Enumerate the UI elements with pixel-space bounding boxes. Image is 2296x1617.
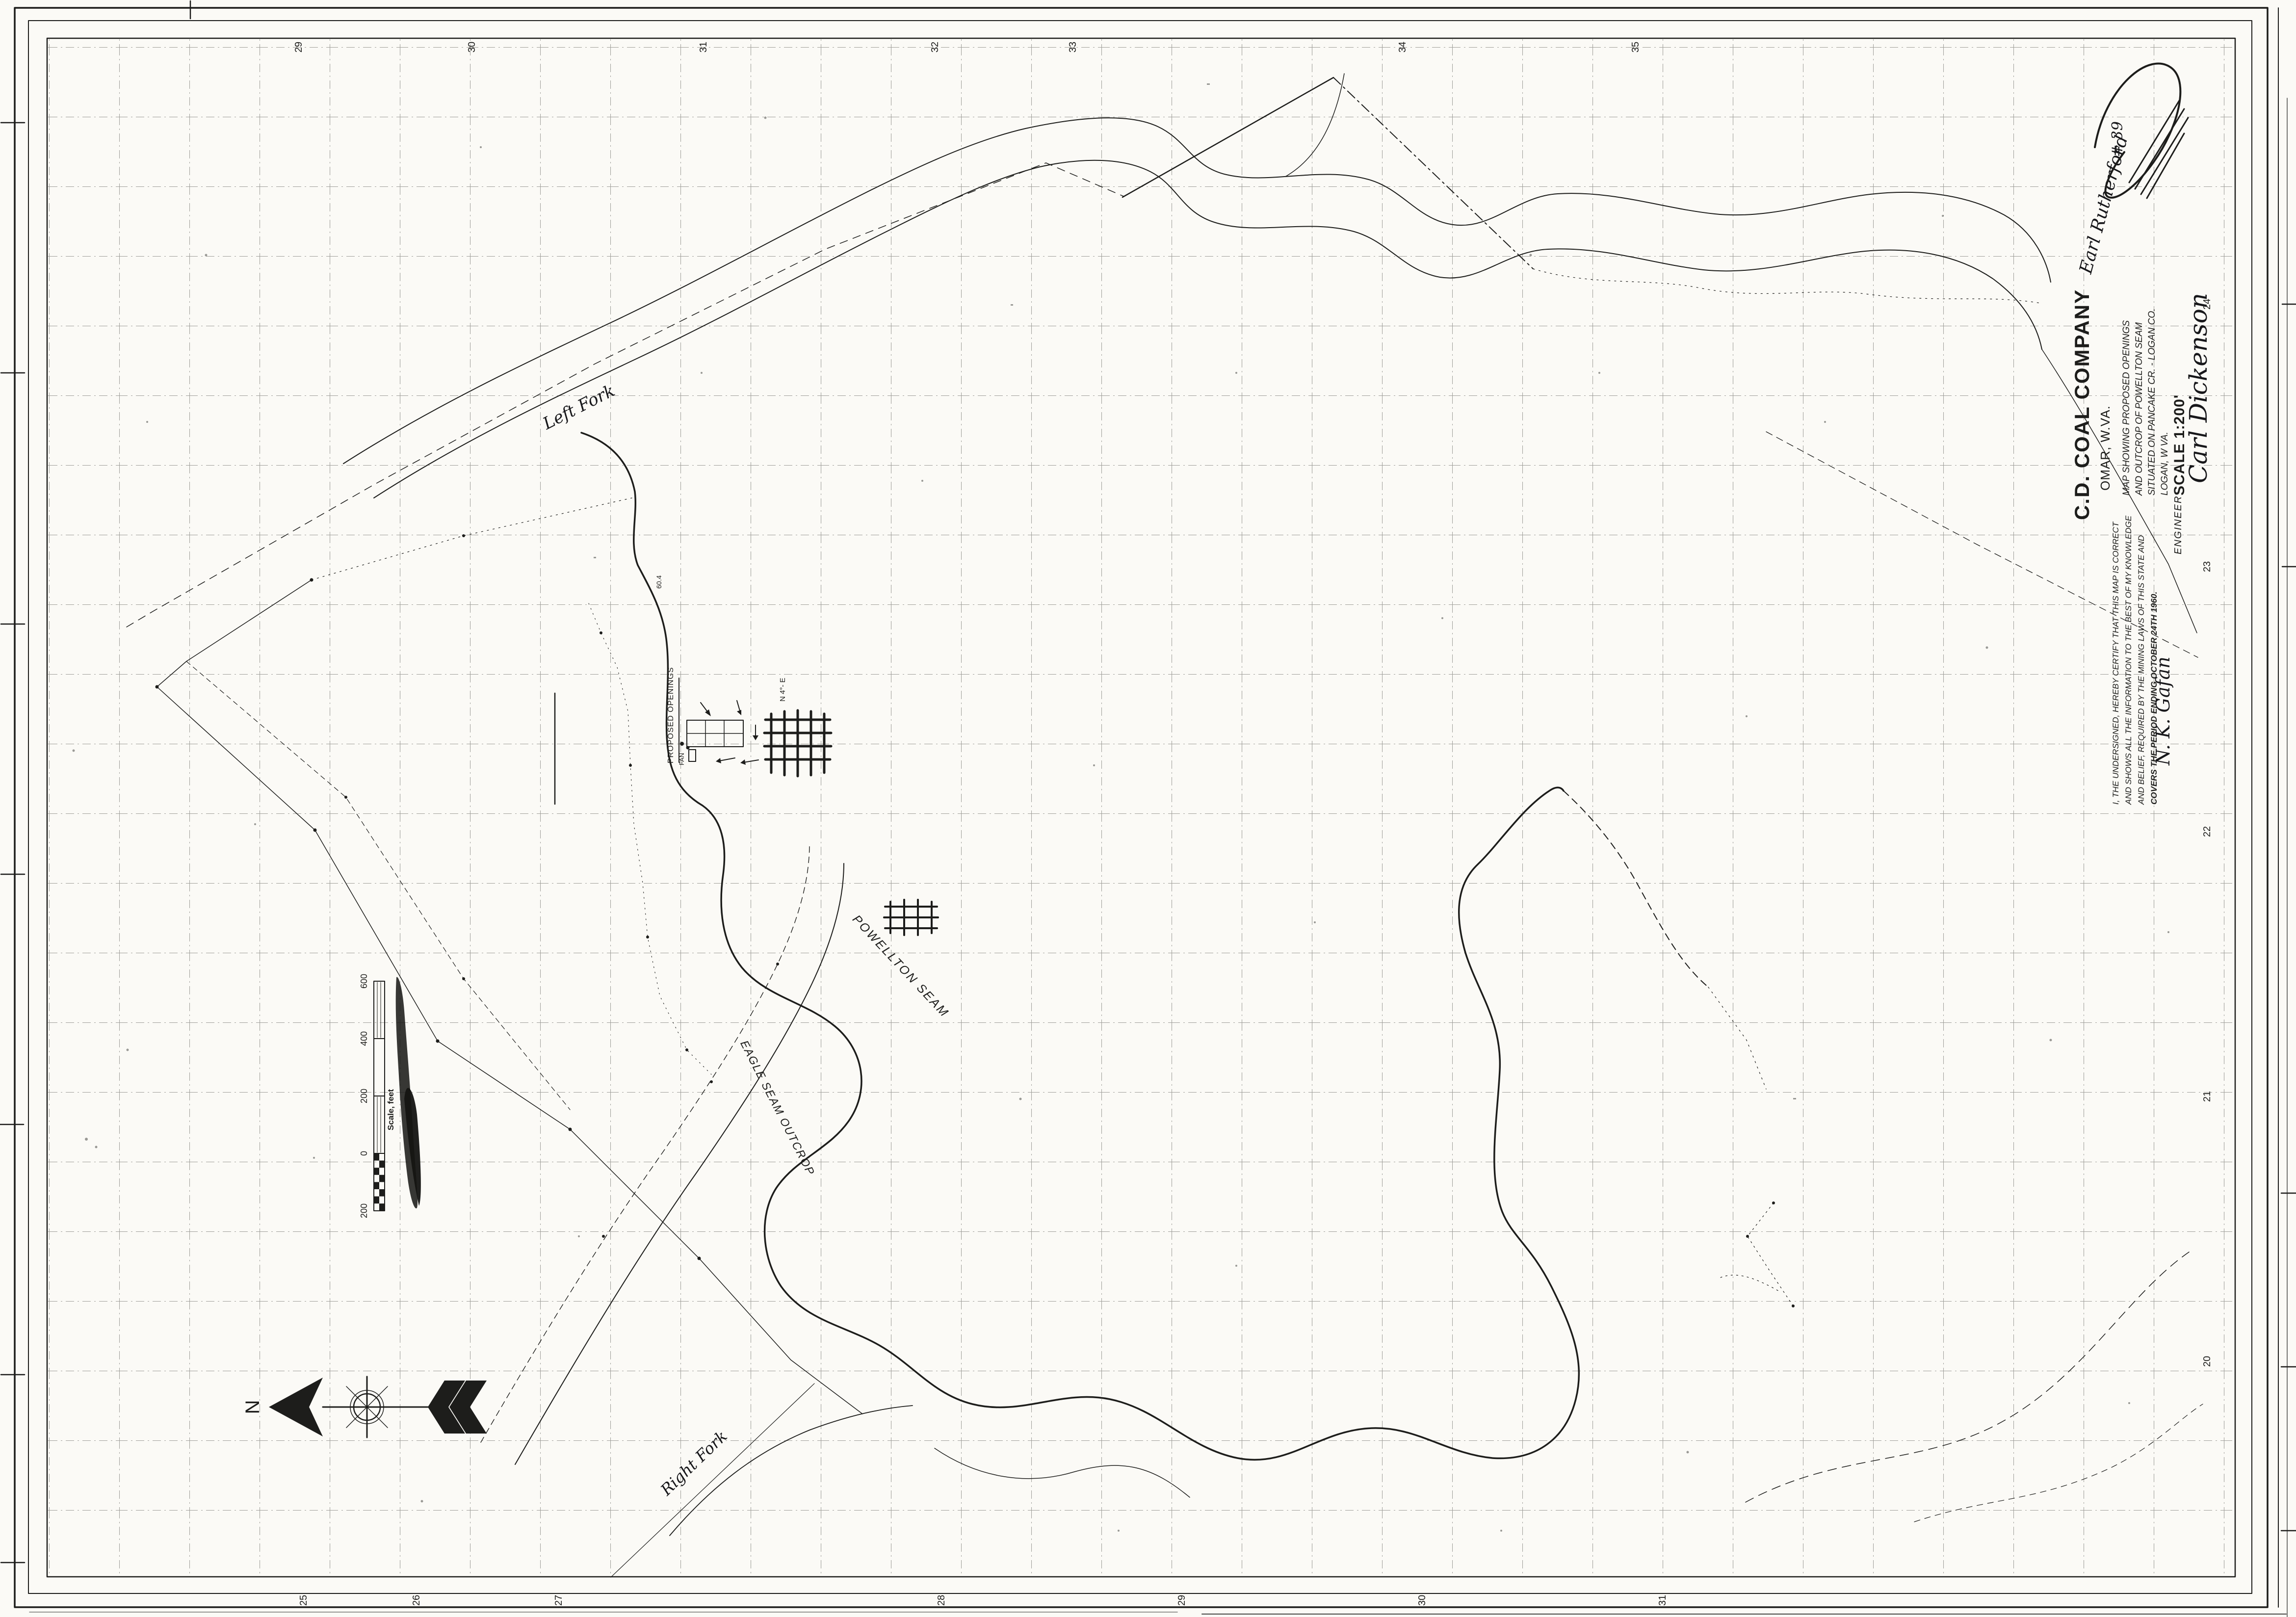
map-desc-line2: AND OUTCROP OF POWELLTON SEAM [2134,322,2144,496]
cert-line3: AND BELIEF, REQUIRED BY THE MINING LAWS … [2137,535,2146,805]
grid-num-bottom-3: 28 [936,1595,947,1606]
grid-num-top-2: 31 [698,42,709,52]
grid-num-top-4: 33 [1068,42,1078,52]
grid-num-bottom-2: 27 [553,1595,564,1606]
grid-num-right-4: 20 [2202,1356,2213,1367]
map-desc-line3: SITUATED ON PANCAKE CR. - LOGAN CO. [2147,309,2157,496]
cert-line2: AND SHOWS ALL THE INFORMATION TO THE BES… [2124,515,2133,805]
grid-num-bottom-4: 29 [1176,1595,1187,1606]
grid-num-right-3: 21 [2202,1091,2213,1102]
grid-num-top-5: 34 [1397,42,1408,52]
map-sheet: 600 400 200 0 200 Scale, feet N Left [0,0,2296,1617]
scale-tick-400: 400 [359,1031,369,1046]
scale-tick-200: 200 [359,1089,369,1103]
spot-elevation-label: 60.4 [655,575,663,589]
bearing-label: N 4°- E [779,678,787,702]
cert-title: ENGINEER [2173,496,2184,554]
scale-tick-200b: 200 [359,1203,369,1218]
scale-signature: Carl Dickenson [2184,293,2213,483]
grid-num-bottom-1: 26 [411,1595,422,1606]
fan-label: FAN [678,753,685,765]
grid-num-top-6: 35 [1630,42,1641,52]
grid-num-top-1: 30 [467,42,477,52]
grid-num-bottom-5: 30 [1417,1595,1428,1606]
company-town: OMAR, W.VA. [2098,405,2113,491]
map-desc-line4: LOGAN, W VA. [2160,432,2170,496]
map-desc-line1: MAP SHOWING PROPOSED OPENINGS [2121,320,2132,496]
scale-tick-600: 600 [359,974,369,989]
proposed-openings-label: PROPOSED OPENINGS [667,667,675,763]
grid-num-right-0: 24 [2202,299,2213,310]
grid-num-right-1: 23 [2202,561,2213,572]
grid-num-top-3: 32 [930,42,940,52]
scale-caption: Scale, feet [386,1089,395,1130]
north-label: N [242,1400,263,1414]
grid-num-bottom-6: 31 [1657,1595,1668,1606]
grid-num-top-0: 29 [293,42,304,52]
grid-num-bottom-0: 25 [298,1595,309,1606]
coordinate-grid [47,38,2235,1577]
grid-num-right-2: 22 [2202,826,2213,837]
cert-signature: N. K. Gafan [2152,656,2174,766]
cert-line1: I, THE UNDERSIGNED, HEREBY CERTIFY THAT … [2111,521,2120,805]
scale-tick-0: 0 [359,1151,369,1156]
company-name: C.D. COAL COMPANY [2070,289,2093,520]
